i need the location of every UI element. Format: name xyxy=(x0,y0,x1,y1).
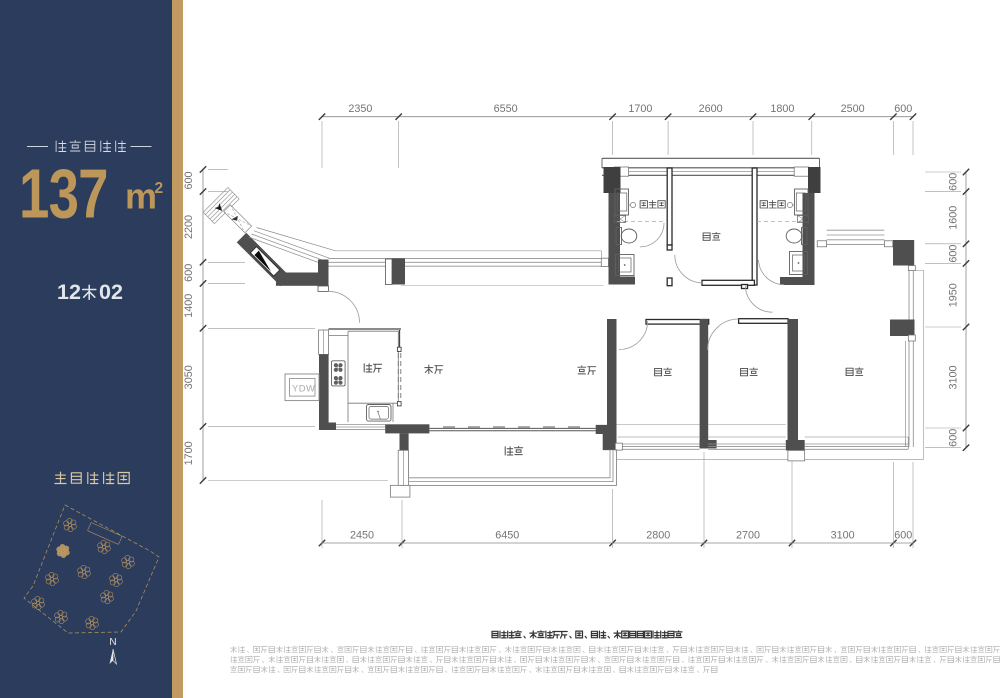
svg-text:1700: 1700 xyxy=(628,103,652,115)
svg-text:3050: 3050 xyxy=(183,365,195,389)
svg-text:600: 600 xyxy=(183,264,195,282)
svg-text:600: 600 xyxy=(948,173,960,191)
svg-text:3100: 3100 xyxy=(948,365,960,389)
svg-text:2350: 2350 xyxy=(348,103,372,115)
svg-text:1950: 1950 xyxy=(948,283,960,307)
svg-text:600: 600 xyxy=(948,245,960,263)
svg-text:YDW: YDW xyxy=(292,384,315,395)
svg-text:1700: 1700 xyxy=(183,441,195,465)
svg-text:600: 600 xyxy=(894,103,912,115)
svg-text:2600: 2600 xyxy=(699,103,723,115)
svg-text:1400: 1400 xyxy=(183,294,195,318)
svg-text:3100: 3100 xyxy=(831,530,855,542)
svg-text:2: 2 xyxy=(155,180,164,197)
svg-text:6450: 6450 xyxy=(495,530,519,542)
svg-text:600: 600 xyxy=(894,530,912,542)
svg-text:600: 600 xyxy=(183,171,195,189)
svg-text:2800: 2800 xyxy=(646,530,670,542)
svg-text:N: N xyxy=(109,637,116,648)
svg-text:m: m xyxy=(125,176,157,217)
svg-text:2700: 2700 xyxy=(736,530,760,542)
svg-text:12: 12 xyxy=(57,280,81,304)
svg-text:1600: 1600 xyxy=(948,206,960,230)
svg-text:600: 600 xyxy=(948,429,960,447)
svg-text:02: 02 xyxy=(99,280,123,304)
svg-text:2450: 2450 xyxy=(350,530,374,542)
svg-text:1800: 1800 xyxy=(770,103,794,115)
svg-text:137: 137 xyxy=(19,155,108,233)
svg-text:2200: 2200 xyxy=(183,215,195,239)
svg-text:2500: 2500 xyxy=(841,103,865,115)
svg-text:6550: 6550 xyxy=(494,103,518,115)
